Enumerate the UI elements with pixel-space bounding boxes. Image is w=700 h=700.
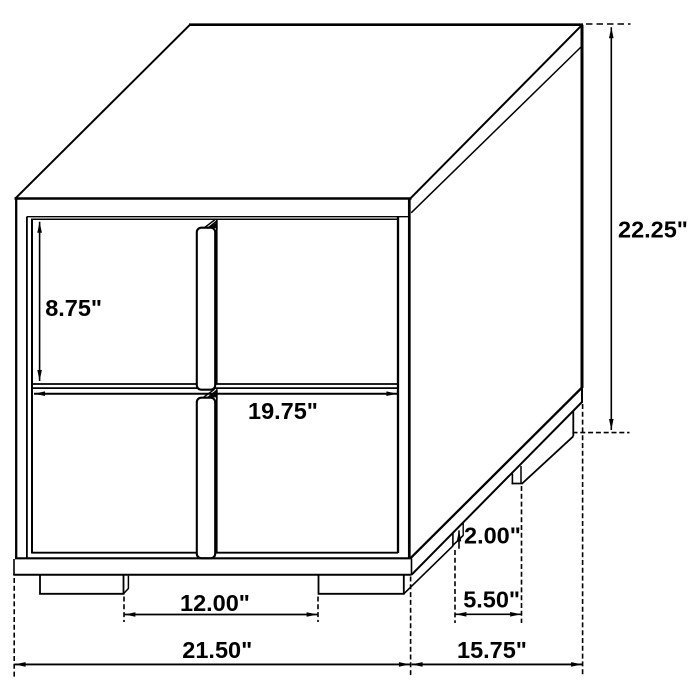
svg-text:15.75": 15.75" bbox=[457, 637, 527, 663]
svg-text:8.75": 8.75" bbox=[45, 295, 102, 321]
svg-text:12.00": 12.00" bbox=[180, 590, 250, 616]
svg-text:22.25": 22.25" bbox=[618, 217, 688, 243]
svg-text:21.50": 21.50" bbox=[182, 637, 252, 663]
svg-text:19.75": 19.75" bbox=[248, 398, 318, 424]
svg-text:5.50": 5.50" bbox=[463, 586, 520, 612]
svg-text:2.00": 2.00" bbox=[464, 523, 521, 549]
